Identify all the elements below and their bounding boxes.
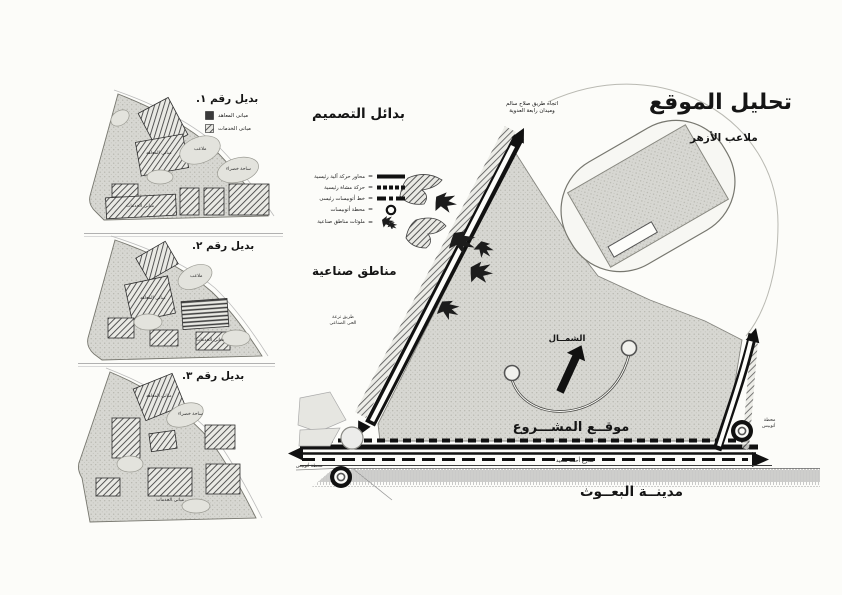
solid-bar-icon xyxy=(376,172,406,181)
arc-node-right xyxy=(622,341,637,356)
industrial-road-line2: الحى الصناعى xyxy=(322,321,364,327)
legend-row-busstop: محطة أتوبيسات = xyxy=(306,204,406,215)
dash-dot-bar-icon xyxy=(376,194,406,203)
equals-sign: = xyxy=(368,195,373,202)
road-arrow-west-icon xyxy=(288,447,303,461)
legend-label: مبانى المعاهد xyxy=(218,113,248,119)
bohooth-city-label: مدينــة البعــوث xyxy=(580,484,683,500)
arc-node-left xyxy=(505,366,520,381)
legend-row-services: مبانى الخدمات xyxy=(205,122,251,135)
vegetation-strip xyxy=(312,468,820,487)
equals-sign: = xyxy=(368,184,373,191)
plan2-label: مبانى الخدمات xyxy=(196,338,224,344)
alternative-2-plan xyxy=(88,236,268,360)
alternative-1-legend: مبانى المعاهد مبانى الخدمات xyxy=(205,109,251,135)
legend-label: محطة أتوبيسات xyxy=(330,207,364,213)
double-circle-icon xyxy=(376,204,406,216)
plan2-label: مبانى المعاهد xyxy=(140,296,166,302)
alternative-3-title: بديل رقم ٣. xyxy=(182,370,244,382)
legend-row-busline: خط أتوبيسات رئيسى = xyxy=(306,193,406,204)
hatched-square-icon xyxy=(205,124,214,133)
bus-stop-right-line2: أتوبيس xyxy=(762,424,775,430)
design-legend: محاور حركة آلية رئيسية = حركة مشاة رئيسي… xyxy=(306,171,406,229)
north-label: الشمــال xyxy=(544,334,590,344)
industrial-road-note: طريق ترعة الحى الصناعى xyxy=(322,315,364,326)
stadium-label: ملاعب الأزهر xyxy=(690,132,758,144)
top-direction-line2: وميدان رابعة العدوية xyxy=(492,108,572,115)
bus-stop-right-line1: محطة xyxy=(762,418,775,424)
legend-row-pollution: ملوثات مناطق صناعية = xyxy=(306,215,406,229)
legend-label: ملوثات مناطق صناعية xyxy=(317,219,365,225)
plan1-label: مبانى المعاهد xyxy=(146,151,172,157)
alternative-1-title: بديل رقم ١. xyxy=(196,93,258,105)
legend-row-vehicular: محاور حركة آلية رئيسية = xyxy=(306,171,406,182)
industrial-area-label: مناطق صناعية xyxy=(312,264,397,278)
solid-square-icon xyxy=(205,111,214,120)
dashed-bar-icon xyxy=(376,183,406,192)
roundabout xyxy=(341,427,363,449)
top-direction-line1: اتجاه طريق صلاح سالم xyxy=(492,101,572,108)
bottom-road-label: شارع أحمد سعيد xyxy=(556,458,594,465)
plan2-label: ملاعب xyxy=(190,274,202,280)
bus-stop-left-note: محطة أتوبيس xyxy=(296,464,323,470)
plan1-label: ساحة خضراء xyxy=(226,167,251,173)
plan3-label: مبانى الخدمات xyxy=(156,498,184,504)
legend-label: مبانى الخدمات xyxy=(218,126,251,132)
site-analysis-sheet: تحليل الموقع ملاعب الأزهر بدائل التصميم … xyxy=(0,0,842,595)
plan1-label: مبانى الخدمات xyxy=(126,204,154,210)
sheet-title: تحليل الموقع xyxy=(660,90,792,115)
legend-label: حركة مشاة رئيسية xyxy=(324,185,365,191)
bottom-road xyxy=(288,441,820,501)
bus-stop-left-icon xyxy=(330,466,352,488)
alternative-2-title: بديل رقم ٢. xyxy=(192,240,254,252)
design-alternatives-heading: بدائل التصميم xyxy=(312,106,405,122)
equals-sign: = xyxy=(368,173,373,180)
plan1-label: ملاعب xyxy=(194,147,206,153)
legend-row-pedestrian: حركة مشاة رئيسية = xyxy=(306,182,406,193)
plan3-label: مبانى المعاهد xyxy=(146,394,172,400)
project-site-label: موقــع المشـــروع xyxy=(505,420,637,435)
legend-row-institutes: مبانى المعاهد xyxy=(205,109,251,122)
equals-sign: = xyxy=(368,219,373,226)
equals-sign: = xyxy=(368,206,373,213)
legend-label: خط أتوبيسات رئيسى xyxy=(319,196,365,202)
sketch-arrows-icon xyxy=(376,215,406,229)
bus-stop-right-note: محطة أتوبيس xyxy=(762,418,775,429)
plan3-label: ساحة خضراء xyxy=(178,412,203,418)
top-direction-note: اتجاه طريق صلاح سالم وميدان رابعة العدوي… xyxy=(492,101,572,114)
road-arrow-east-icon xyxy=(752,452,769,467)
bus-stop-right-icon xyxy=(731,420,753,442)
legend-label: محاور حركة آلية رئيسية xyxy=(314,174,365,180)
